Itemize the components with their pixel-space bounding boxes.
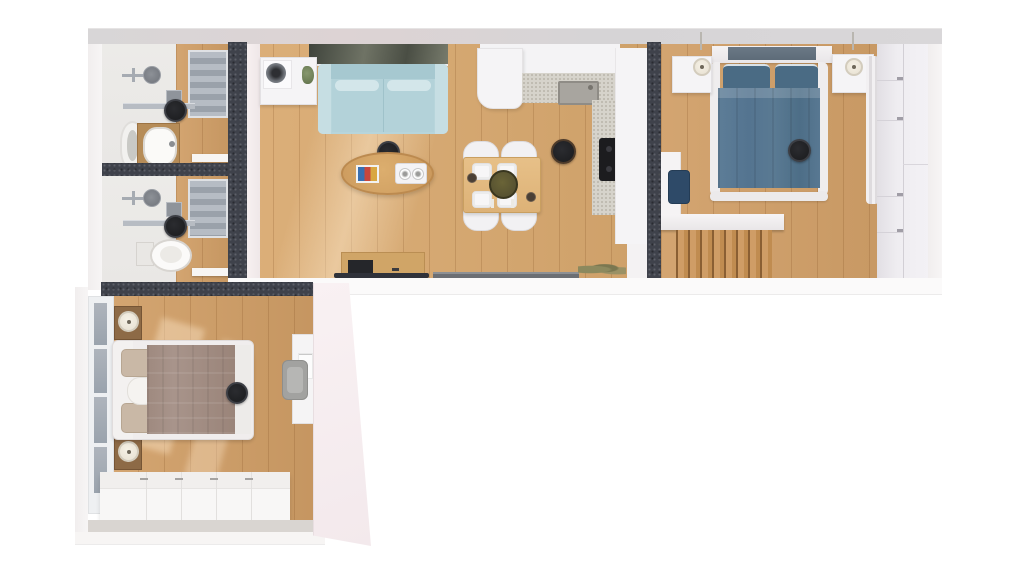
wardrobe-handle (897, 193, 903, 196)
exterior-wall-bottom-lower (75, 532, 325, 545)
navy-chair (668, 170, 690, 204)
bed-duvet (147, 345, 235, 434)
desk-chair (282, 360, 308, 400)
shower-riser (132, 68, 135, 82)
sofa-pillow-right (387, 80, 431, 91)
wardrobe-seam (877, 80, 903, 81)
dining-table (463, 157, 541, 213)
lamp-cord (852, 32, 854, 50)
kitchen-tall-cabinet (477, 48, 523, 109)
rain-shower-head (143, 189, 161, 207)
staircase (676, 230, 772, 278)
window-glass (94, 303, 107, 345)
room-bedroom-main (661, 44, 928, 278)
cup-icon (399, 168, 411, 180)
faucet (169, 141, 175, 147)
wall-bedroom-second-top (101, 282, 313, 296)
tray (395, 163, 427, 184)
rain-shower-head (143, 66, 161, 84)
toilet-bowl (150, 239, 192, 272)
living-left-wall (247, 44, 260, 278)
wardrobe-handle (140, 478, 148, 480)
wardrobe-handle (897, 117, 903, 120)
remote (392, 268, 399, 271)
window-glass (94, 349, 107, 393)
tall-white-wall (313, 283, 371, 546)
coffee-table (341, 152, 434, 195)
wardrobe-handle (175, 478, 183, 480)
ceiling-lamp (551, 139, 576, 164)
exterior-wall-right (928, 44, 942, 290)
burner-icon (606, 166, 612, 172)
wardrobe-handle (210, 478, 218, 480)
table-lamp (118, 311, 139, 332)
room-bedroom-second (88, 296, 313, 536)
cup-icon (412, 168, 424, 180)
media-cabinet (260, 57, 317, 105)
wardrobe-seam (877, 232, 903, 233)
exterior-wall-left-lower (75, 287, 88, 537)
room-living (247, 44, 647, 278)
shower-riser (132, 191, 135, 205)
faucet (588, 85, 593, 90)
wardrobe-handle (245, 478, 253, 480)
window-glass (94, 397, 107, 443)
chair-seat (287, 367, 303, 393)
wall-picture (309, 44, 448, 66)
cutlery-icon (491, 199, 494, 208)
burner-icon (606, 146, 612, 152)
kitchen-cabinet-front (615, 48, 648, 244)
room-bathroom-top (102, 44, 232, 163)
table-lamp (118, 441, 139, 462)
bed-canopy-top (728, 47, 816, 60)
olive-bowl (489, 170, 518, 199)
floor-plan-render (0, 0, 1024, 576)
glass-icon (467, 173, 477, 183)
cutlery-icon (511, 199, 514, 208)
vanity-counter (137, 123, 180, 167)
wardrobe-seam (903, 44, 904, 278)
floor-shadow-strip (88, 520, 313, 532)
wardrobe-seam (903, 164, 928, 165)
wall-bathroom-divider (102, 163, 232, 176)
plant-icon (302, 66, 314, 84)
wardrobe-seam (877, 120, 903, 121)
toilet-seat (160, 246, 182, 263)
wardrobe-handle (897, 229, 903, 232)
ceiling-lamp (164, 99, 187, 122)
ceiling-lamp (788, 139, 811, 162)
exterior-wall-top (88, 28, 942, 45)
bed-duvet (718, 88, 820, 188)
ceiling-lamp (226, 382, 248, 404)
speaker-icon (266, 63, 286, 83)
sofa-armrest-left (318, 64, 331, 134)
glass-icon (526, 192, 536, 202)
sofa (318, 64, 448, 134)
wardrobe (877, 44, 928, 278)
sofa-armrest-right (435, 64, 448, 134)
kitchen-end-column (627, 244, 647, 278)
wardrobe-handle (897, 77, 903, 80)
room-bathroom-bottom (102, 176, 232, 282)
table-lamp (693, 58, 711, 76)
wall-bathrooms-living (228, 42, 247, 292)
plate (472, 191, 492, 208)
bed-foot-bar (710, 192, 828, 201)
floor-plant (578, 263, 626, 276)
wardrobe-seam (877, 196, 903, 197)
sofa-pillow-left (335, 80, 379, 91)
stair-railing (661, 214, 784, 230)
exterior-wall-left (88, 44, 102, 290)
duvet-texture (718, 88, 820, 188)
shower-enclosure (188, 179, 228, 238)
low-wardrobe-row (100, 472, 290, 520)
lamp-cord (700, 32, 702, 50)
ceiling-lamp (164, 215, 187, 238)
wardrobe-front (100, 488, 290, 521)
sofa-back (318, 64, 448, 79)
wardrobe-top-face (100, 472, 290, 488)
tv (348, 260, 373, 273)
table-lamp (845, 58, 863, 76)
book (356, 165, 379, 183)
wall-kitchen-bedroom (647, 42, 661, 280)
